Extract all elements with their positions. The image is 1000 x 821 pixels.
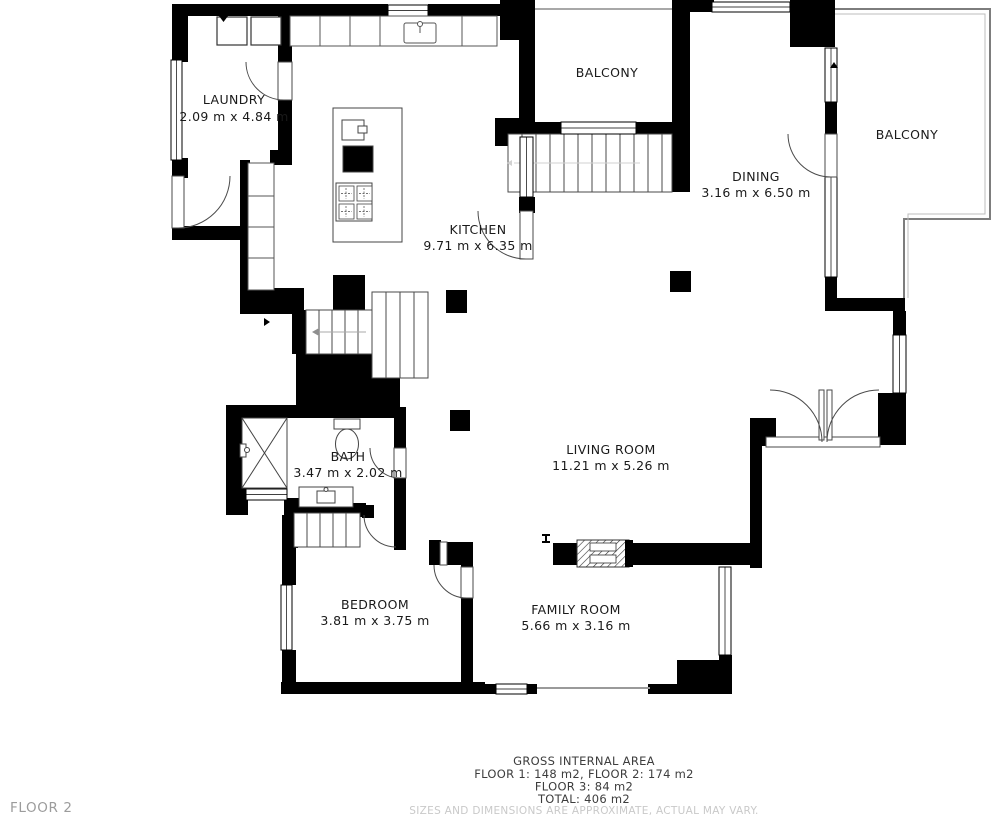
floor-plan-canvas: LAUNDRY 2.09 m x 4.84 m KITCHEN 9.71 m x…: [0, 0, 1000, 821]
balcony-right-outline: [835, 9, 990, 298]
room-label-balcony-top: BALCONY: [576, 65, 638, 80]
french-doors-living: [766, 390, 880, 447]
room-dims: 3.81 m x 3.75 m: [320, 613, 429, 628]
kitchen-counter: [290, 16, 497, 46]
room-label-bedroom: BEDROOM 3.81 m x 3.75 m: [320, 597, 429, 628]
room-dims: 5.66 m x 3.16 m: [521, 618, 630, 633]
room-label-balcony-right: BALCONY: [876, 127, 938, 142]
room-name: DINING: [732, 169, 780, 184]
window-dining-top: [712, 2, 790, 12]
vanity-sink: [299, 487, 353, 507]
door-bedroom: [434, 565, 473, 598]
room-name: LIVING ROOM: [566, 442, 655, 457]
room-name: BEDROOM: [341, 597, 409, 612]
stairs-bedroom: [294, 513, 360, 547]
room-dims: 3.16 m x 6.50 m: [701, 185, 810, 200]
room-label-laundry: LAUNDRY 2.09 m x 4.84 m: [179, 92, 288, 124]
shower: [240, 418, 287, 488]
window-balcony-bottom: [561, 122, 636, 134]
floor-label: FLOOR 2: [10, 800, 73, 816]
window-dining-lower: [825, 177, 837, 277]
room-label-bath: BATH 3.47 m x 2.02 m: [293, 449, 402, 480]
window-top-kitchen: [388, 5, 428, 16]
window-family-bottom: [496, 684, 527, 694]
room-label-family: FAMILY ROOM 5.66 m x 3.16 m: [521, 602, 630, 633]
room-name: KITCHEN: [450, 222, 507, 237]
room-dims: 11.21 m x 5.26 m: [552, 458, 670, 473]
floor-plan-page: LAUNDRY 2.09 m x 4.84 m KITCHEN 9.71 m x…: [0, 0, 1000, 821]
room-name: LAUNDRY: [203, 92, 265, 107]
door-laundry-exterior: [172, 176, 230, 228]
kitchen-sink: [404, 22, 436, 44]
room-label-kitchen: KITCHEN 9.71 m x 6.35 m: [423, 222, 532, 253]
room-name: BALCONY: [576, 65, 638, 80]
window-bedroom-left: [281, 585, 292, 650]
window-family-right: [719, 567, 731, 655]
fireplace: [577, 540, 633, 567]
laundry-appliances: [217, 17, 281, 45]
room-label-dining: DINING 3.16 m x 6.50 m: [701, 169, 810, 200]
window-kitchen-balcony: [520, 137, 533, 197]
window-dining-upper: [825, 48, 837, 102]
room-name: FAMILY ROOM: [531, 602, 621, 617]
room-dims: 2.09 m x 4.84 m: [179, 109, 288, 124]
gross-area-line3: TOTAL: 406 m2: [537, 792, 630, 806]
kitchen-island: [333, 108, 402, 242]
room-dims: 3.47 m x 2.02 m: [293, 465, 402, 480]
door-dining-balcony: [788, 134, 837, 177]
room-name: BATH: [331, 449, 366, 464]
stove: [336, 183, 372, 221]
room-name: BALCONY: [876, 127, 938, 142]
door-bedroom-hall: [364, 515, 396, 547]
disclaimer: SIZES AND DIMENSIONS ARE APPROXIMATE, AC…: [409, 805, 758, 817]
room-label-living: LIVING ROOM 11.21 m x 5.26 m: [552, 442, 670, 473]
kitchen-cabinet-run: [248, 163, 274, 290]
footer-summary: GROSS INTERNAL AREA FLOOR 1: 148 m2, FLO…: [409, 754, 758, 817]
window-living-right: [893, 335, 906, 393]
room-dims: 9.71 m x 6.35 m: [423, 238, 532, 253]
gross-area-title: GROSS INTERNAL AREA: [513, 754, 655, 768]
window-shower: [246, 489, 287, 500]
door-closet: [440, 542, 447, 565]
